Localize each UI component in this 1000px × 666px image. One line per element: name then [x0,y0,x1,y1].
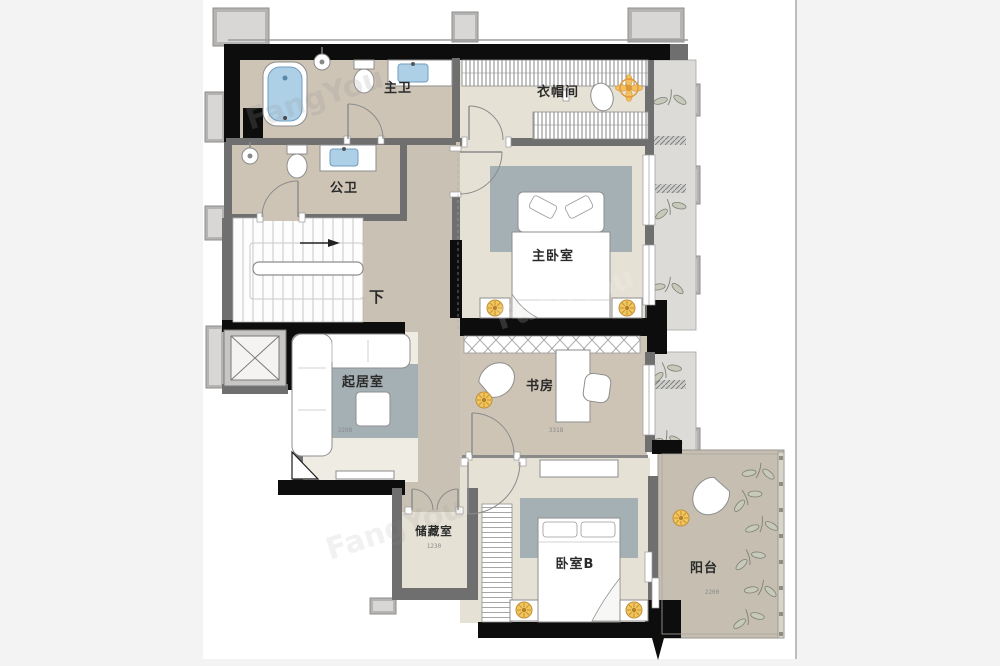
wardrobe [482,504,512,622]
round-side-table-icon [673,510,689,526]
bathtub-drain [283,76,288,81]
stair-handrail [253,262,363,275]
label-storage: 储藏室 [415,524,453,538]
pillow [581,522,615,537]
table-lamp-icon [619,300,635,316]
closet-cabinet [464,336,640,353]
floor-plan-canvas: FangYou FangYou FangYou 主卫 衣帽间 公卫 主卧室 下 … [0,0,1000,666]
label-master-bath: 主卫 [384,80,412,96]
dim-living: 2208 [338,427,353,434]
coffee-table [356,392,390,426]
balcony-railing [778,452,784,638]
dresser [540,460,618,477]
dim-study: 3318 [549,427,564,434]
toilet [287,145,307,178]
staircase [233,218,363,322]
dim-balcony: 2200 [705,589,720,596]
window [643,155,655,435]
label-master-bedroom: 主卧室 [532,248,574,264]
round-side-table-icon [476,392,492,408]
label-stairs-down: 下 [369,288,385,306]
label-public-bath: 公卫 [330,181,358,196]
table-lamp-icon [516,602,532,618]
vanity-sink [320,145,376,171]
label-closet: 衣帽间 [537,84,579,100]
desk-chair [582,372,612,403]
label-study: 书房 [526,378,554,394]
elevator-shaft [224,330,286,386]
dim-storage: 1230 [427,543,442,550]
wardrobe [533,112,648,139]
label-living: 起居室 [341,374,384,390]
label-bedroom-b: 卧室B [556,556,595,572]
bedroom-bench [518,192,604,232]
sofa-chaise [292,334,332,456]
sheet-right-border [795,0,797,659]
tv-cabinet [336,471,394,479]
label-balcony: 阳台 [690,560,718,576]
table-lamp-icon [626,602,642,618]
floor-plan-viewer: FangYou FangYou FangYou 主卫 衣帽间 公卫 主卧室 下 … [0,0,1000,666]
pillow [543,522,577,537]
